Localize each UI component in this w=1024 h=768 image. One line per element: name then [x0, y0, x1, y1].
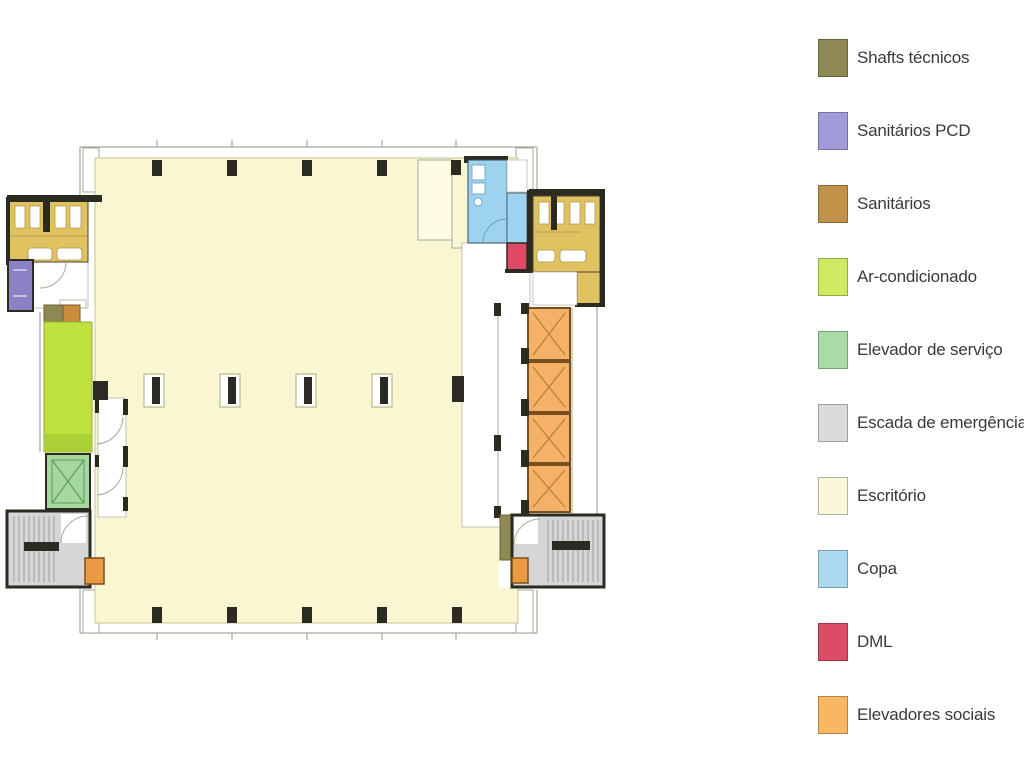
stairs-bottom-right: [500, 515, 604, 587]
legend-color-swatch: [818, 185, 848, 223]
legend-item-7: Copa: [818, 550, 1024, 588]
legend-label: Sanitários: [857, 194, 931, 214]
legend-color-swatch: [818, 39, 848, 77]
legend-color-swatch: [818, 477, 848, 515]
legend-label: Escritório: [857, 486, 926, 506]
elevator-hall: [462, 243, 530, 527]
legend-item-9: Elevadores sociais: [818, 696, 1024, 734]
legend-label: Elevadores sociais: [857, 705, 995, 725]
legend-label: Shafts técnicos: [857, 48, 969, 68]
legend-color-swatch: [818, 623, 848, 661]
shaft-box: [512, 558, 528, 583]
legend: Shafts técnicos Sanitários PCD Sanitário…: [818, 39, 1024, 768]
service-elevator: [46, 454, 90, 509]
legend-item-1: Sanitários PCD: [818, 112, 1024, 150]
legend-item-5: Escada de emergência: [818, 404, 1024, 442]
sinks: [537, 250, 586, 262]
legend-item-4: Elevador de serviço: [818, 331, 1024, 369]
legend-item-6: Escritório: [818, 477, 1024, 515]
legend-item-3: Ar-condicionado: [818, 258, 1024, 296]
stairs-bottom-left: [7, 511, 104, 587]
legend-color-swatch: [818, 112, 848, 150]
legend-item-8: DML: [818, 623, 1024, 661]
sanitarios-left-room: [6, 195, 102, 265]
shaft-cells: [44, 305, 80, 322]
shaft-box: [85, 558, 104, 584]
legend-label: Sanitários PCD: [857, 121, 970, 141]
legend-color-swatch: [818, 404, 848, 442]
legend-color-swatch: [818, 696, 848, 734]
legend-label: DML: [857, 632, 892, 652]
floor-plan-drawing: [0, 0, 620, 768]
legend-label: Elevador de serviço: [857, 340, 1003, 360]
legend-label: Escada de emergência: [857, 413, 1024, 433]
legend-item-0: Shafts técnicos: [818, 39, 1024, 77]
social-elevators: [521, 303, 572, 515]
elevator-landing: [533, 272, 577, 305]
legend-item-2: Sanitários: [818, 185, 1024, 223]
legend-color-swatch: [818, 550, 848, 588]
legend-color-swatch: [818, 331, 848, 369]
left-corridor: [98, 398, 126, 517]
legend-label: Copa: [857, 559, 897, 579]
floor-plan-page: Shafts técnicos Sanitários PCD Sanitário…: [0, 0, 1024, 768]
sanitarios-pcd-room: [8, 260, 33, 311]
legend-color-swatch: [818, 258, 848, 296]
ar-condicionado-room: [44, 322, 92, 452]
legend-label: Ar-condicionado: [857, 267, 977, 287]
